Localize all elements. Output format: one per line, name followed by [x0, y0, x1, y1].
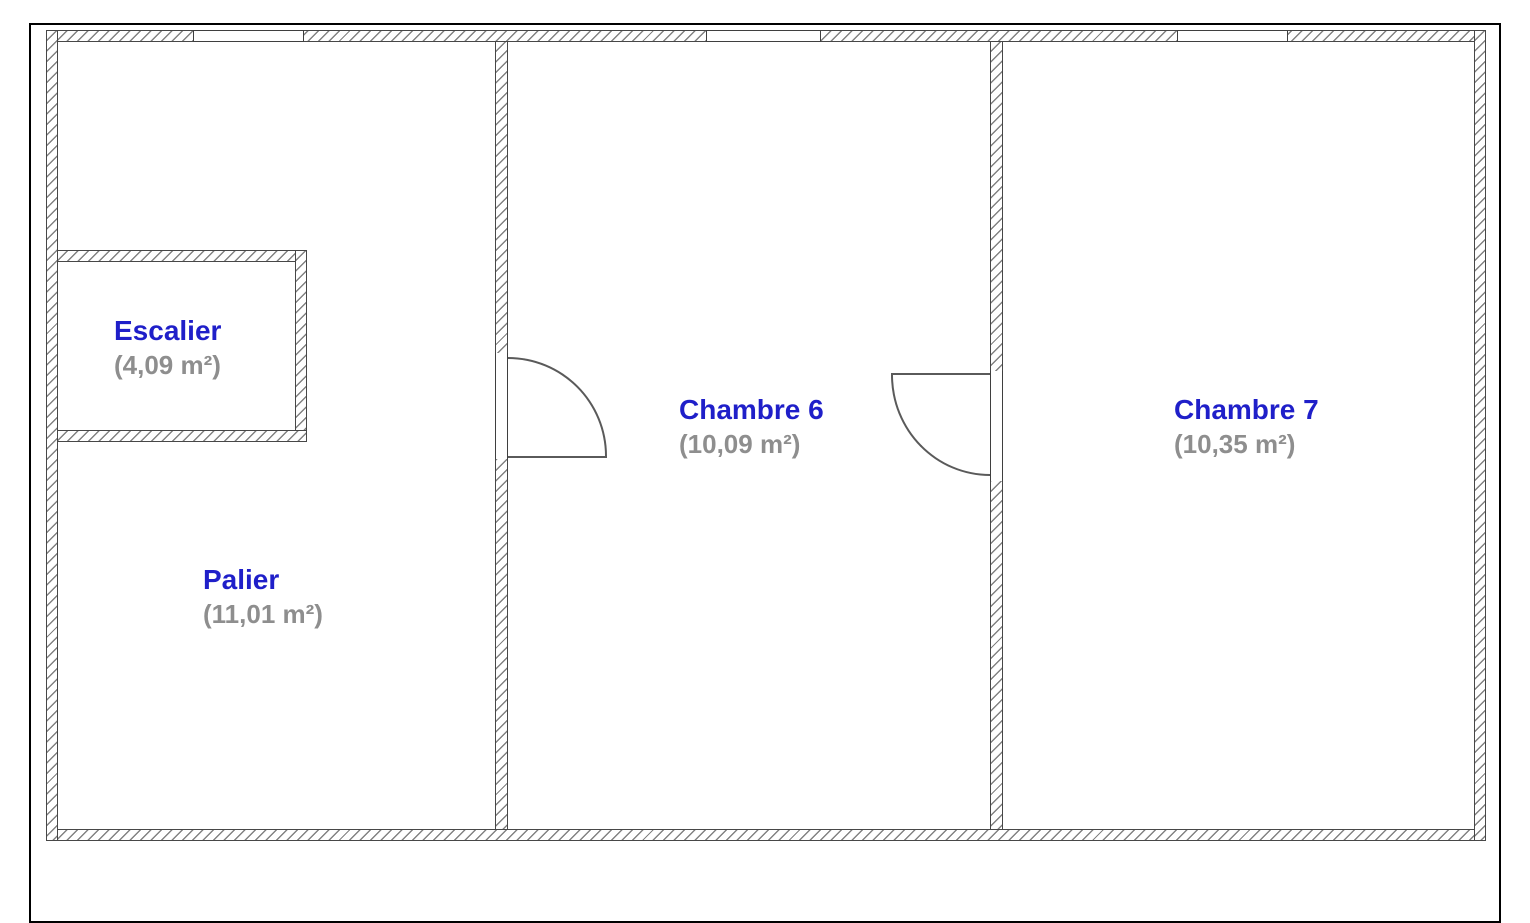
sheet-border — [29, 23, 1501, 923]
room-name-escalier: Escalier — [114, 313, 221, 348]
window-chambre-7 — [1177, 30, 1288, 42]
room-area-chambre-6: (10,09 m²) — [679, 427, 824, 462]
room-label-chambre-7: Chambre 7 (10,35 m²) — [1174, 392, 1319, 462]
window-palier — [193, 30, 304, 42]
room-name-chambre-6: Chambre 6 — [679, 392, 824, 427]
door-leaf-chambre-7 — [891, 373, 990, 375]
room-name-chambre-7: Chambre 7 — [1174, 392, 1319, 427]
stair-wall-bottom — [57, 430, 307, 442]
outer-wall-right — [1474, 30, 1486, 841]
outer-wall-bottom — [46, 829, 1486, 841]
room-area-chambre-7: (10,35 m²) — [1174, 427, 1319, 462]
stair-wall-top — [57, 250, 307, 262]
floor-plan-sheet: { "rooms": [ { "id": "escalier", "name":… — [0, 0, 1530, 886]
door-opening-chambre-7 — [990, 371, 1003, 481]
room-name-palier: Palier — [203, 562, 323, 597]
door-leaf-chambre-6 — [508, 456, 607, 458]
room-label-palier: Palier (11,01 m²) — [203, 562, 323, 632]
door-opening-chambre-6 — [495, 353, 508, 459]
room-label-chambre-6: Chambre 6 (10,09 m²) — [679, 392, 824, 462]
room-area-palier: (11,01 m²) — [203, 597, 323, 632]
room-label-escalier: Escalier (4,09 m²) — [114, 313, 221, 383]
stair-wall-right — [295, 250, 307, 442]
room-area-escalier: (4,09 m²) — [114, 348, 221, 383]
window-chambre-6 — [706, 30, 821, 42]
